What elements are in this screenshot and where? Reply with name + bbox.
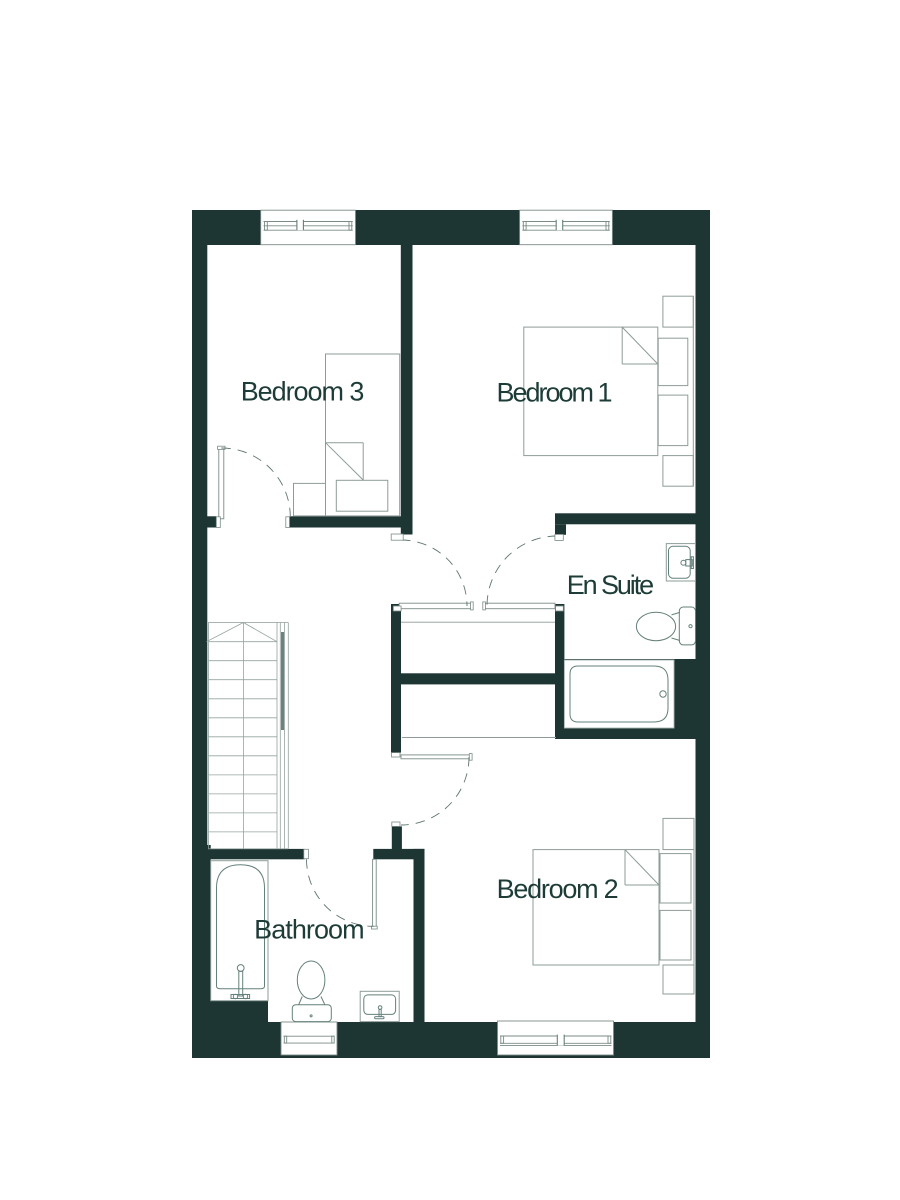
svg-text:Bedroom 1: Bedroom 1 [496, 378, 611, 408]
svg-text:Bedroom 2: Bedroom 2 [497, 874, 618, 904]
svg-text:En Suite: En Suite [567, 570, 653, 600]
svg-text:Bathroom: Bathroom [254, 915, 363, 945]
svg-text:Bedroom 3: Bedroom 3 [241, 376, 364, 406]
